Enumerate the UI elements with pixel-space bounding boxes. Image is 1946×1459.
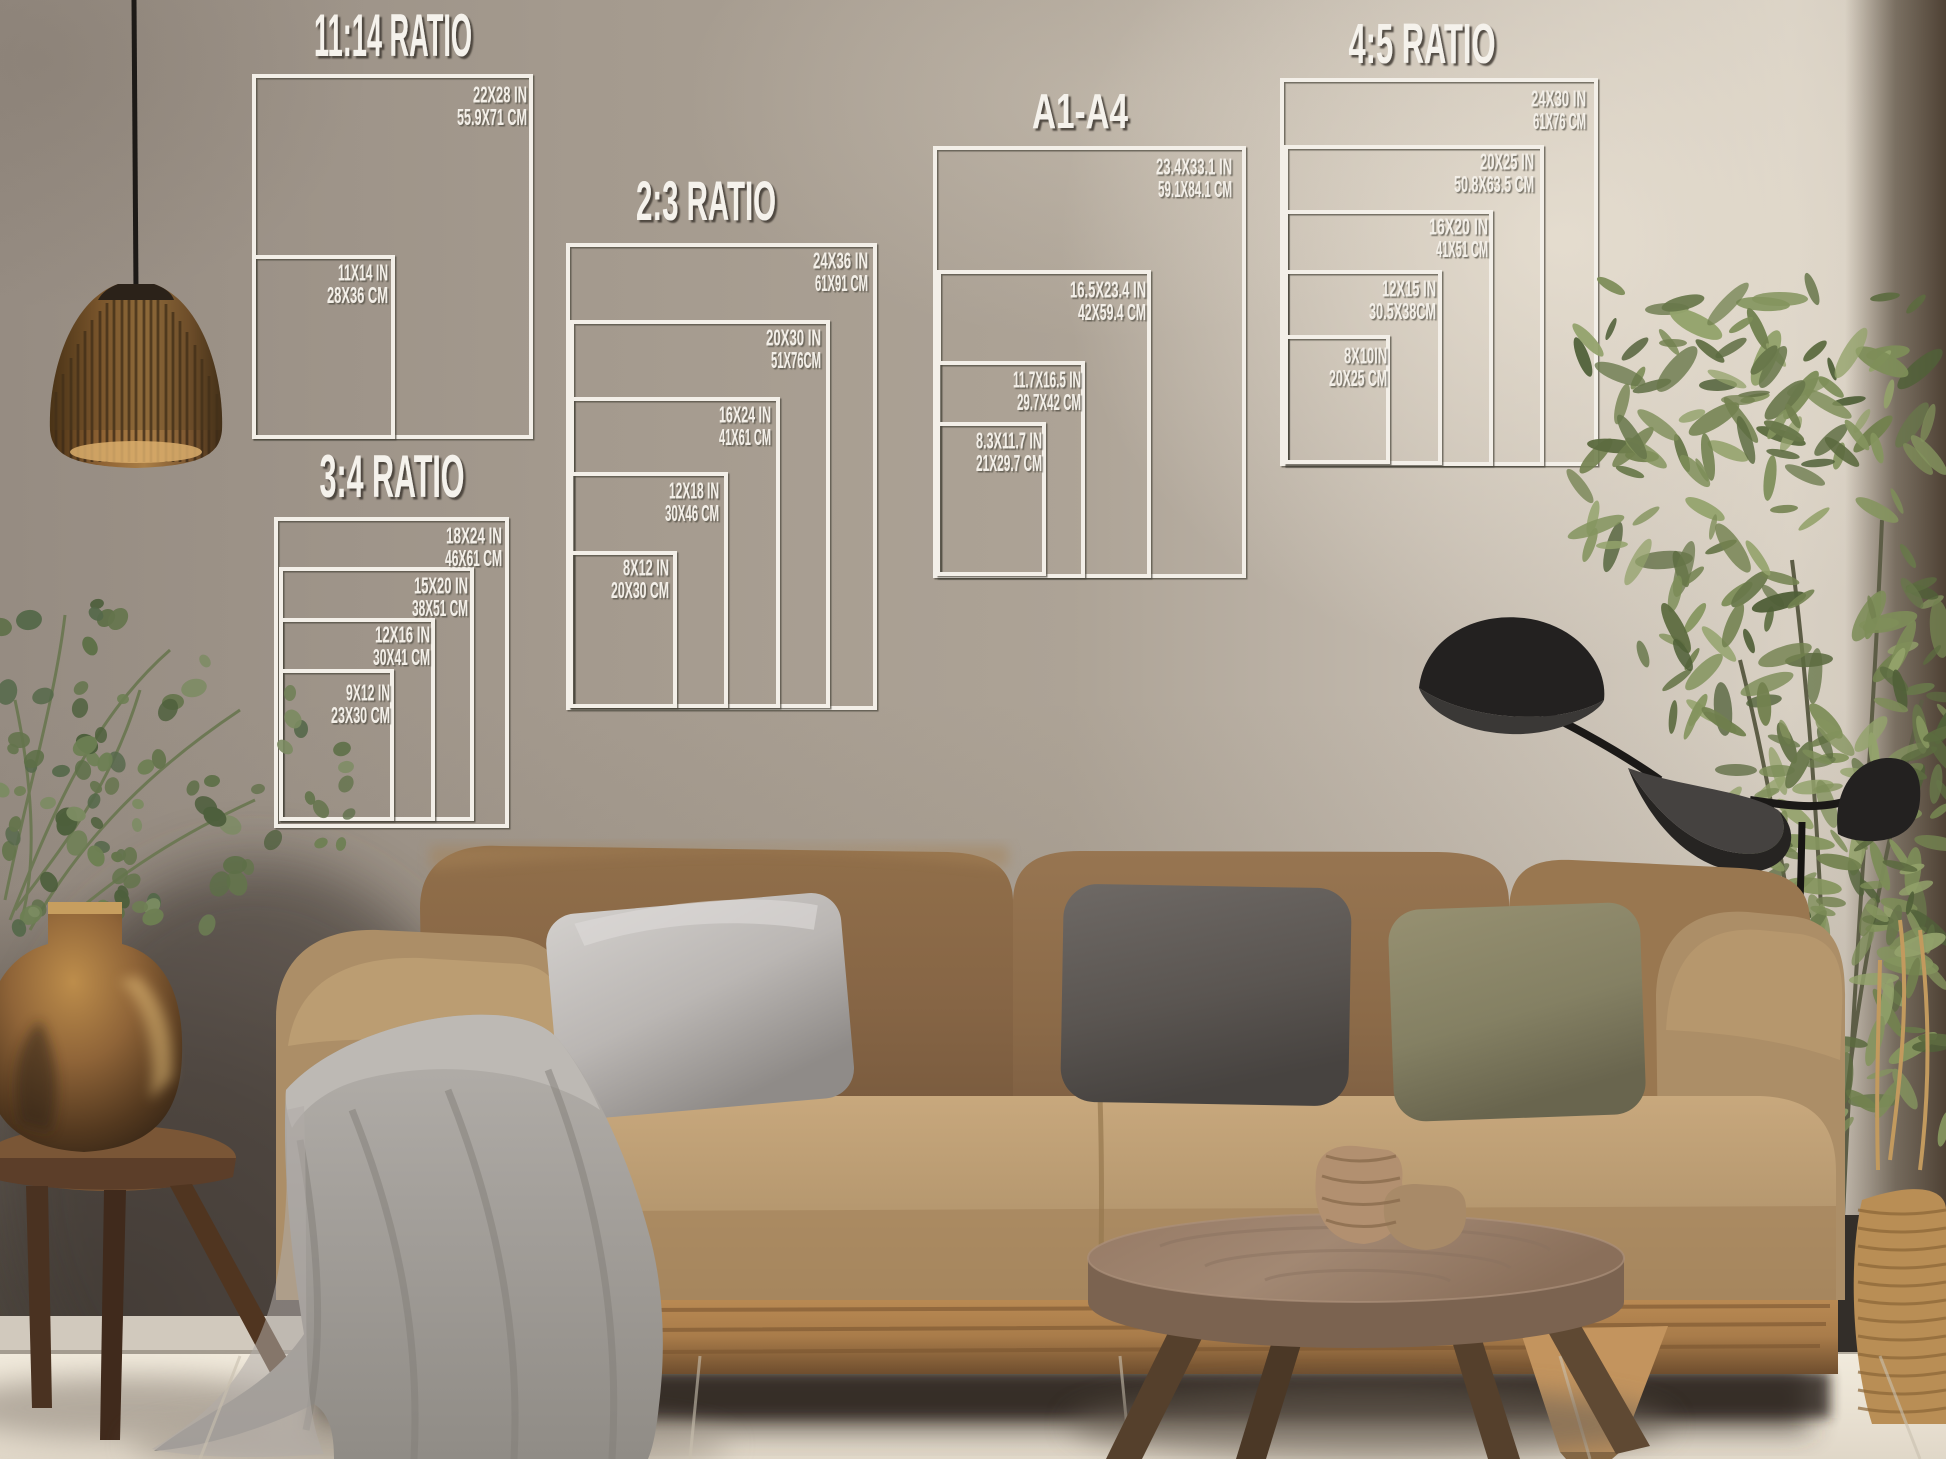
svg-text:20X30 CM: 20X30 CM: [611, 577, 669, 603]
svg-text:30X46 CM: 30X46 CM: [665, 500, 719, 526]
svg-text:2:3 RATIO: 2:3 RATIO: [636, 169, 776, 232]
svg-text:20X25 CM: 20X25 CM: [1329, 365, 1387, 391]
svg-text:51X76CM: 51X76CM: [771, 347, 821, 373]
svg-text:21X29.7 CM: 21X29.7 CM: [976, 450, 1042, 476]
svg-text:A1-A4: A1-A4: [1032, 85, 1128, 139]
svg-text:3:4 RATIO: 3:4 RATIO: [320, 443, 465, 510]
svg-text:28X36 CM: 28X36 CM: [327, 282, 388, 308]
svg-text:41X61 CM: 41X61 CM: [719, 424, 771, 450]
svg-text:61X76 CM: 61X76 CM: [1533, 108, 1586, 134]
svg-text:50.8X63.5 CM: 50.8X63.5 CM: [1454, 171, 1534, 197]
svg-text:30X41 CM: 30X41 CM: [373, 644, 430, 670]
svg-text:46X61 CM: 46X61 CM: [445, 545, 502, 571]
svg-text:11:14 RATIO: 11:14 RATIO: [314, 2, 472, 69]
svg-text:41X51 CM: 41X51 CM: [1436, 236, 1488, 262]
svg-text:38X51 CM: 38X51 CM: [412, 595, 468, 621]
svg-text:4:5 RATIO: 4:5 RATIO: [1349, 12, 1496, 76]
svg-text:59.1X84.1 CM: 59.1X84.1 CM: [1158, 176, 1232, 202]
svg-text:23X30 CM: 23X30 CM: [331, 702, 390, 728]
svg-text:61X91 CM: 61X91 CM: [815, 270, 868, 296]
svg-text:55.9X71 CM: 55.9X71 CM: [457, 104, 527, 130]
svg-text:29.7X42 CM: 29.7X42 CM: [1017, 389, 1081, 415]
svg-text:30.5X38CM: 30.5X38CM: [1369, 298, 1436, 324]
svg-text:42X59.4 CM: 42X59.4 CM: [1078, 299, 1146, 325]
